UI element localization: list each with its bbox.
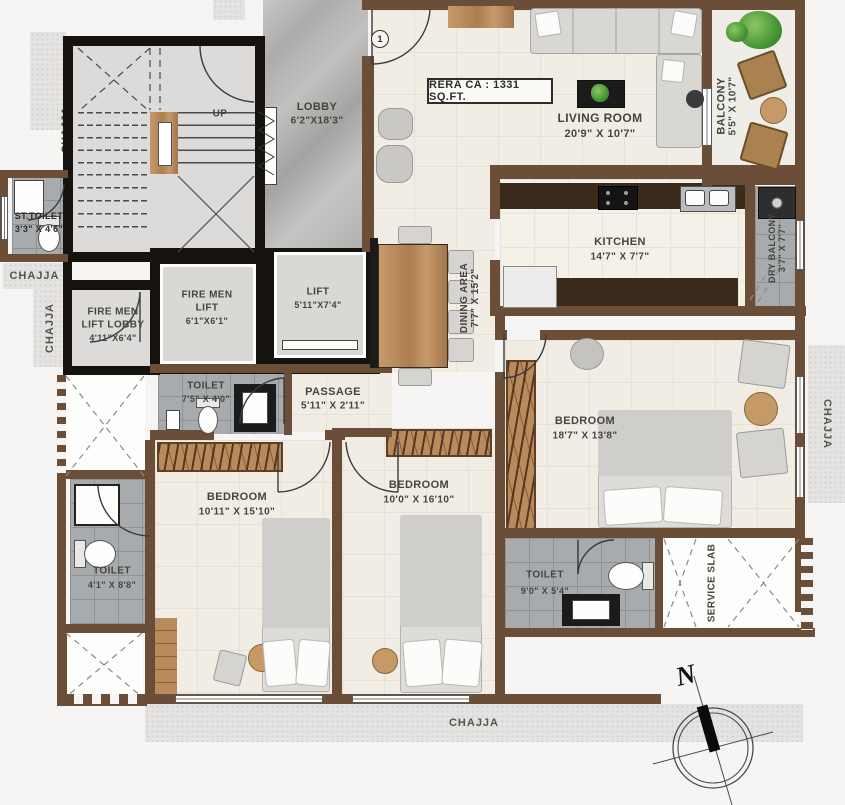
wall-balcony-top (702, 0, 805, 10)
balcony-plant-2 (726, 22, 748, 42)
bedroom1-side-wardrobe (153, 618, 177, 694)
sofa-cushion-3 (661, 59, 685, 83)
pouf-2 (376, 145, 413, 183)
bedroom1-blanket (262, 518, 330, 628)
toilet-common-sink (166, 410, 180, 430)
bedroom2-dims: 10'0" X 16'10" (384, 495, 455, 506)
wall-dry-balcony-left (745, 183, 755, 310)
wall-toilet-service-div (655, 538, 663, 630)
service-slab-label: SERVICE SLAB (707, 544, 718, 623)
master-armchair-2 (736, 428, 789, 479)
balcony-table (760, 97, 787, 124)
wall-bedroom-divider (332, 428, 342, 704)
bedroom1-dims: 10'11" X 15'10" (199, 507, 275, 518)
wall-balcony-right (795, 0, 805, 188)
master-pillow-1 (603, 486, 663, 526)
dry-balcony-window (796, 220, 804, 270)
master-pillow-2 (663, 486, 723, 526)
bedroom1-name: BEDROOM (207, 491, 267, 503)
stair-treads-left (75, 112, 150, 174)
dry-balcony-dims: 3'7" X 7'7" (777, 224, 787, 272)
wall-bed2-top (342, 428, 392, 437)
wall-kitchen-left-a (490, 179, 500, 219)
chajja-strip-bottom: CHAJJA (145, 704, 803, 742)
wall-corner-left (57, 626, 67, 704)
master-armchair-1 (737, 339, 791, 389)
north-label: N (673, 658, 699, 693)
toilet-small-dims: 4'1" X 8'8" (88, 580, 136, 590)
main-door-tag: 1 (371, 30, 389, 48)
sink-basin-1 (685, 190, 705, 206)
toilet-master-dims: 9'0" X 5'4" (521, 586, 569, 596)
sofa-cushion-2 (670, 10, 698, 38)
fire-lobby-wall-top (63, 280, 153, 290)
toilet-small-name: TOILET (93, 566, 131, 577)
edge-hatch-bottom-left (65, 694, 145, 704)
fire-lobby-name2: LIFT LOBBY (82, 320, 145, 331)
kitchen-name: KITCHEN (594, 236, 646, 248)
lift-name: LIFT (307, 287, 330, 298)
master-round-table (744, 392, 778, 426)
edge-hatch-left-upper (57, 375, 66, 475)
dining-chair-6 (398, 368, 432, 386)
master-window-2 (796, 446, 804, 498)
fire-lobby-wall-left (63, 262, 72, 374)
toilet-small-sink (74, 484, 120, 526)
coffee-table-plant (591, 84, 609, 102)
wall-st-toilet-bottom (6, 254, 68, 262)
duct-box-lower (65, 632, 143, 698)
rera-area-note: RERA CA : 1331 SQ.FT. (427, 78, 553, 104)
fire-lift-name2: LIFT (196, 303, 219, 314)
bedroom2-table (372, 648, 398, 674)
bedroom2-pillow-2 (441, 638, 483, 687)
dining-name: DINING AREA (459, 263, 470, 333)
wall-toilet-common-top (150, 364, 392, 373)
st-toilet-sink (14, 180, 44, 214)
pouf-1 (378, 108, 413, 140)
wall-toilet-small-top (60, 470, 154, 479)
balcony-label: BALCONY 5'5" X 10'7" (716, 76, 739, 135)
master-dims: 18'7" X 13'8" (552, 431, 617, 442)
bedroom1-pillow-2 (295, 639, 331, 688)
st-toilet-dims: 3'3" X 4'6" (15, 224, 63, 234)
fire-lift-dims: 6'1"X6'1" (186, 316, 228, 326)
wall-toilet-passage-div (284, 373, 292, 435)
dining-dims: 7'7" X 15'2" (470, 268, 481, 327)
bedroom2-blanket (400, 515, 482, 627)
toilet-common-name: TOILET (187, 381, 225, 392)
floor-plan: CHAJJA CHAJJA CHAJJA CHAJJA CHAJJA CHAJJ… (0, 0, 845, 805)
wall-master-bottom (505, 528, 805, 538)
passage-dims: 5'11" X 2'11" (301, 401, 365, 412)
master-bed-blanket (598, 410, 732, 476)
toilet-master-name: TOILET (526, 570, 564, 581)
lift-dims: 5'11"X7'4" (294, 300, 341, 310)
toilet-master-wc (608, 562, 644, 590)
wall-bed2-right-b (495, 372, 505, 704)
sofa-cushion-1 (534, 10, 561, 37)
kitchen-dims: 14'7" X 7'7" (590, 252, 649, 263)
wall-balcony-left-a (702, 10, 712, 88)
toilet-master-shower-tray (572, 600, 610, 620)
stair-treads-right (178, 112, 255, 174)
st-toilet-window (1, 196, 8, 240)
wall-lobby-right (362, 56, 374, 252)
master-wardrobe (506, 360, 536, 535)
chajja-label: CHAJJA (44, 303, 56, 353)
fire-lobby-wall-bottom (63, 366, 160, 375)
lift-door (282, 340, 358, 350)
bedroom1-window (175, 695, 323, 703)
living-dims: 20'9" X 10'7" (564, 128, 635, 140)
bedroom1-pillow-1 (262, 639, 298, 688)
lobby-dims: 6'2"X18'3" (291, 116, 344, 127)
service-slab-floor (663, 535, 800, 628)
living-console (448, 6, 514, 28)
wall-outer-left (57, 470, 66, 630)
bedroom2-window (352, 695, 470, 703)
bedroom1-wardrobe (157, 442, 283, 472)
dining-chair-5 (398, 226, 432, 244)
toilet-common-dims: 7'5" X 4'0" (182, 394, 230, 404)
master-name: BEDROOM (555, 415, 615, 427)
dining-label: DINING AREA 7'7" X 15'2" (459, 263, 481, 333)
chajja-label: CHAJJA (9, 270, 59, 282)
dining-console (370, 238, 378, 368)
bedroom2-name: BEDROOM (389, 479, 449, 491)
fire-lobby-name1: FIRE MEN (88, 307, 139, 318)
chajja-strip-right: CHAJJA (808, 345, 845, 503)
wall-st-toilet-top (6, 170, 68, 178)
dry-balcony-label: DRY BALCONY 3'7" X 7'7" (767, 213, 787, 283)
chajja-strip-left-h: CHAJJA (3, 263, 66, 289)
side-stool (686, 90, 704, 108)
dining-chair-4 (448, 338, 474, 362)
wall-bottom-right (505, 628, 815, 637)
balcony-dims: 5'5" X 10'7" (728, 76, 739, 135)
bedroom2-pillow-1 (402, 638, 444, 687)
edge-hatch-service (801, 538, 813, 630)
service-slab-name: SERVICE SLAB (707, 544, 718, 623)
master-window-1 (796, 376, 804, 434)
dining-table (378, 244, 448, 368)
up-label: UP (213, 109, 228, 120)
bedroom2-wardrobe (386, 429, 492, 457)
chajja-label: CHAJJA (449, 717, 499, 729)
stair-treads-lower (75, 174, 150, 230)
fire-lift-name1: FIRE MEN (182, 290, 233, 301)
living-name: LIVING ROOM (557, 111, 642, 125)
duct-box-upper (65, 375, 145, 477)
chajja-strip-left-v: CHAJJA (33, 289, 66, 367)
fire-lobby-dims: 4'11"X6'4" (89, 333, 136, 343)
gas-stove (598, 186, 638, 210)
stair-newel-core (158, 122, 172, 166)
wall-living-kitchen (490, 165, 805, 179)
lobby-name: LOBBY (297, 101, 338, 113)
chajja-strip-top: CHAJJA (213, 0, 245, 20)
sink-basin-2 (709, 190, 729, 206)
fire-lift-cab (160, 264, 256, 364)
toilet-small-wc (84, 540, 116, 568)
toilet-common-shower-tray (242, 392, 268, 424)
kitchen-counter-bottom (556, 278, 738, 306)
balcony-name: BALCONY (716, 77, 728, 134)
chajja-label: CHAJJA (821, 399, 833, 449)
wall-toilet-small-bottom (60, 624, 154, 633)
fridge (503, 266, 557, 308)
chajja-strip-top-left: CHAJJA (30, 32, 66, 130)
toilet-common-wc (198, 406, 218, 434)
dry-balcony-name: DRY BALCONY (767, 213, 777, 283)
master-pouf (570, 338, 604, 370)
st-toilet-name: ST.TOILET (15, 211, 63, 221)
wall-bed2-right-a (495, 316, 505, 334)
passage-name: PASSAGE (305, 386, 361, 398)
